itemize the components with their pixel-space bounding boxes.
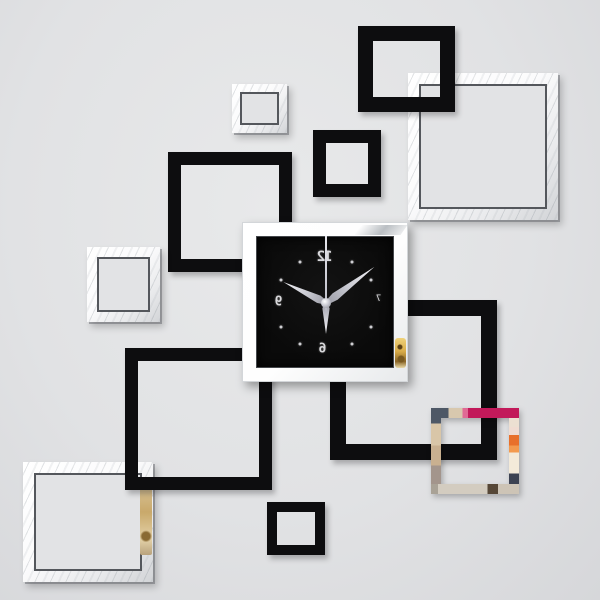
clock-hand-minute	[324, 263, 377, 306]
frame-mirror-left-small	[87, 247, 160, 322]
clock-face: 12 9 6 7	[256, 236, 394, 368]
mirror-frame-opening	[240, 92, 279, 125]
color-frame-edge-bottom	[431, 484, 519, 494]
mirror-reflection-streak	[354, 225, 407, 235]
frame-color-right	[431, 408, 519, 494]
clock-hour-dot	[370, 278, 373, 281]
clock-numeral-right: 7	[377, 294, 381, 304]
clock-hour-dot	[351, 261, 354, 264]
clock-numeral-9: 9	[276, 295, 283, 310]
frame-mirror-top-left-small	[232, 84, 287, 133]
clock-hour-dot	[299, 342, 302, 345]
clock-hour-dot	[299, 261, 302, 264]
mirror-frame-opening	[97, 257, 150, 312]
color-frame-edge-right	[509, 418, 519, 484]
clock-center-cap	[321, 298, 331, 308]
color-frame-edge-top	[431, 408, 519, 418]
clock-hour-dot	[370, 325, 373, 328]
clock-hour-dot	[279, 278, 282, 281]
color-frame-edge-left	[431, 418, 441, 484]
wall-clock: 12 9 6 7	[242, 222, 408, 382]
gold-ornament-reflection	[395, 338, 406, 368]
frame-black-upper-middle	[313, 130, 381, 197]
frame-black-bottom-small	[267, 502, 325, 555]
clock-numeral-6: 6	[320, 342, 327, 357]
frame-black-top	[358, 26, 455, 112]
wall-background: 12 9 6 7	[0, 0, 600, 600]
clock-hour-dot	[351, 342, 354, 345]
clock-hour-dot	[279, 325, 282, 328]
